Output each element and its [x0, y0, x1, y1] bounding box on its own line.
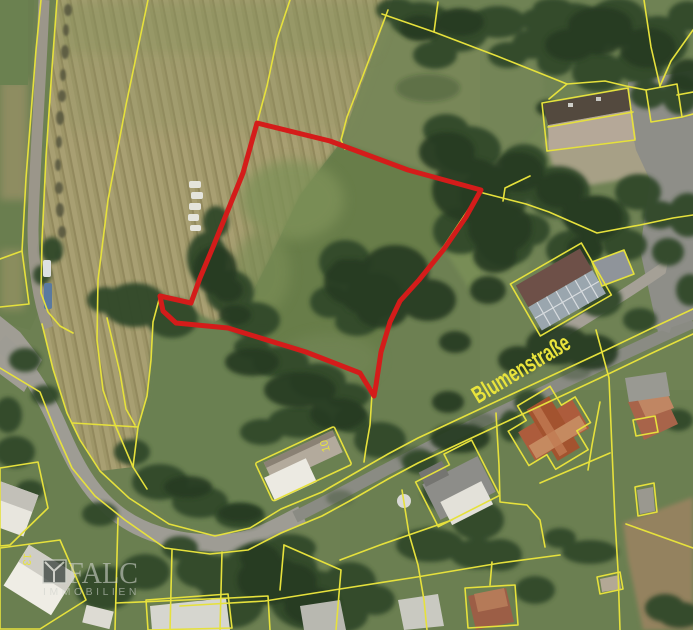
svg-text:13: 13 [20, 553, 33, 566]
svg-text:IMMOBILIEN: IMMOBILIEN [43, 587, 140, 598]
svg-text:FALC: FALC [68, 555, 138, 590]
